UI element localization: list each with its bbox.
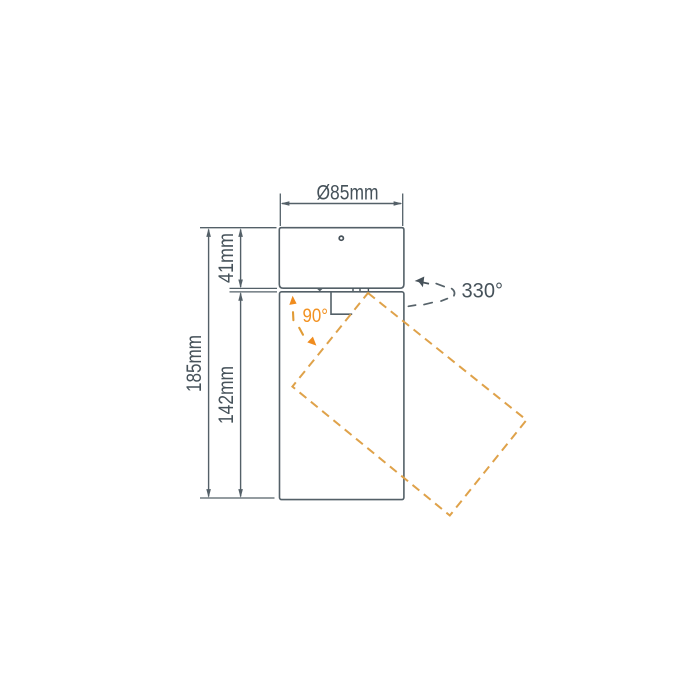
svg-text:90°: 90°	[303, 305, 329, 327]
svg-text:41mm: 41mm	[215, 233, 238, 283]
svg-text:330°: 330°	[462, 280, 504, 303]
svg-text:Ø85mm: Ø85mm	[317, 182, 379, 205]
svg-text:185mm: 185mm	[183, 335, 206, 392]
svg-text:142mm: 142mm	[215, 366, 238, 424]
